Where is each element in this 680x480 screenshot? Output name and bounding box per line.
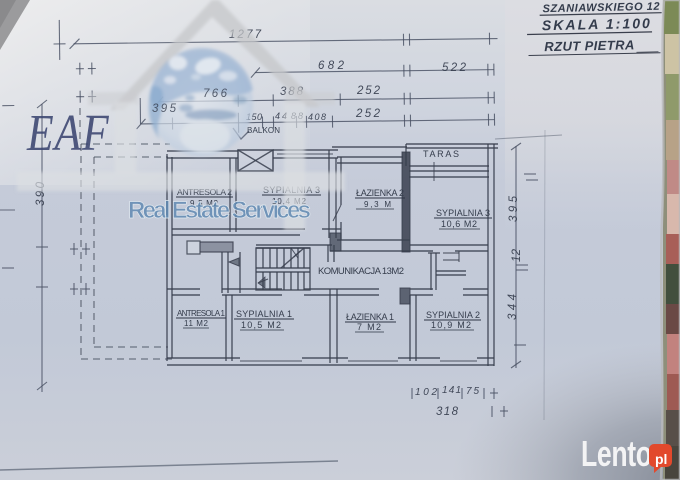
svg-text:KOMUNIKACJA 13M2: KOMUNIKACJA 13M2 bbox=[318, 266, 404, 277]
svg-text:SYPIALNIA 3: SYPIALNIA 3 bbox=[436, 208, 490, 218]
svg-text:10,5 M2: 10,5 M2 bbox=[241, 320, 281, 330]
svg-text:766: 766 bbox=[203, 88, 228, 100]
svg-text:SKALA 1:100: SKALA 1:100 bbox=[542, 15, 651, 33]
svg-text:522: 522 bbox=[442, 62, 467, 74]
svg-text:344: 344 bbox=[507, 294, 519, 320]
svg-text:408: 408 bbox=[308, 112, 326, 122]
svg-text:318: 318 bbox=[436, 406, 459, 418]
svg-text:Lento: Lento bbox=[581, 433, 652, 474]
svg-text:102: 102 bbox=[415, 387, 437, 398]
svg-text:EAF: EAF bbox=[26, 105, 109, 162]
svg-text:ŁAZIENKA 2: ŁAZIENKA 2 bbox=[356, 188, 404, 198]
svg-text:12: 12 bbox=[511, 248, 523, 262]
svg-text:10,9 M2: 10,9 M2 bbox=[431, 320, 471, 330]
svg-text:ANTRESOLA 1: ANTRESOLA 1 bbox=[177, 309, 226, 318]
svg-text:SYPIALNIA 2: SYPIALNIA 2 bbox=[426, 310, 480, 320]
svg-text:7 M2: 7 M2 bbox=[357, 322, 381, 332]
svg-text:RZUT PIETRA: RZUT PIETRA bbox=[544, 37, 634, 54]
svg-text:pl: pl bbox=[655, 451, 667, 467]
svg-text:395: 395 bbox=[152, 103, 177, 115]
svg-text:395: 395 bbox=[508, 195, 520, 222]
svg-text:SYPIALNIA 1: SYPIALNIA 1 bbox=[236, 309, 292, 319]
svg-text:252: 252 bbox=[356, 85, 381, 97]
svg-text:BALKON: BALKON bbox=[247, 126, 280, 135]
svg-text:252: 252 bbox=[355, 108, 381, 120]
svg-text:ŁAZIENKA 1: ŁAZIENKA 1 bbox=[346, 312, 394, 322]
svg-text:11 M2: 11 M2 bbox=[184, 319, 209, 328]
svg-text:9,3 M: 9,3 M bbox=[364, 200, 391, 209]
svg-text:10,6 M2: 10,6 M2 bbox=[441, 219, 477, 229]
svg-text:Real Estate Services: Real Estate Services bbox=[128, 197, 312, 224]
svg-text:682: 682 bbox=[318, 60, 345, 72]
svg-text:75: 75 bbox=[466, 386, 479, 397]
svg-text:141: 141 bbox=[442, 385, 461, 396]
